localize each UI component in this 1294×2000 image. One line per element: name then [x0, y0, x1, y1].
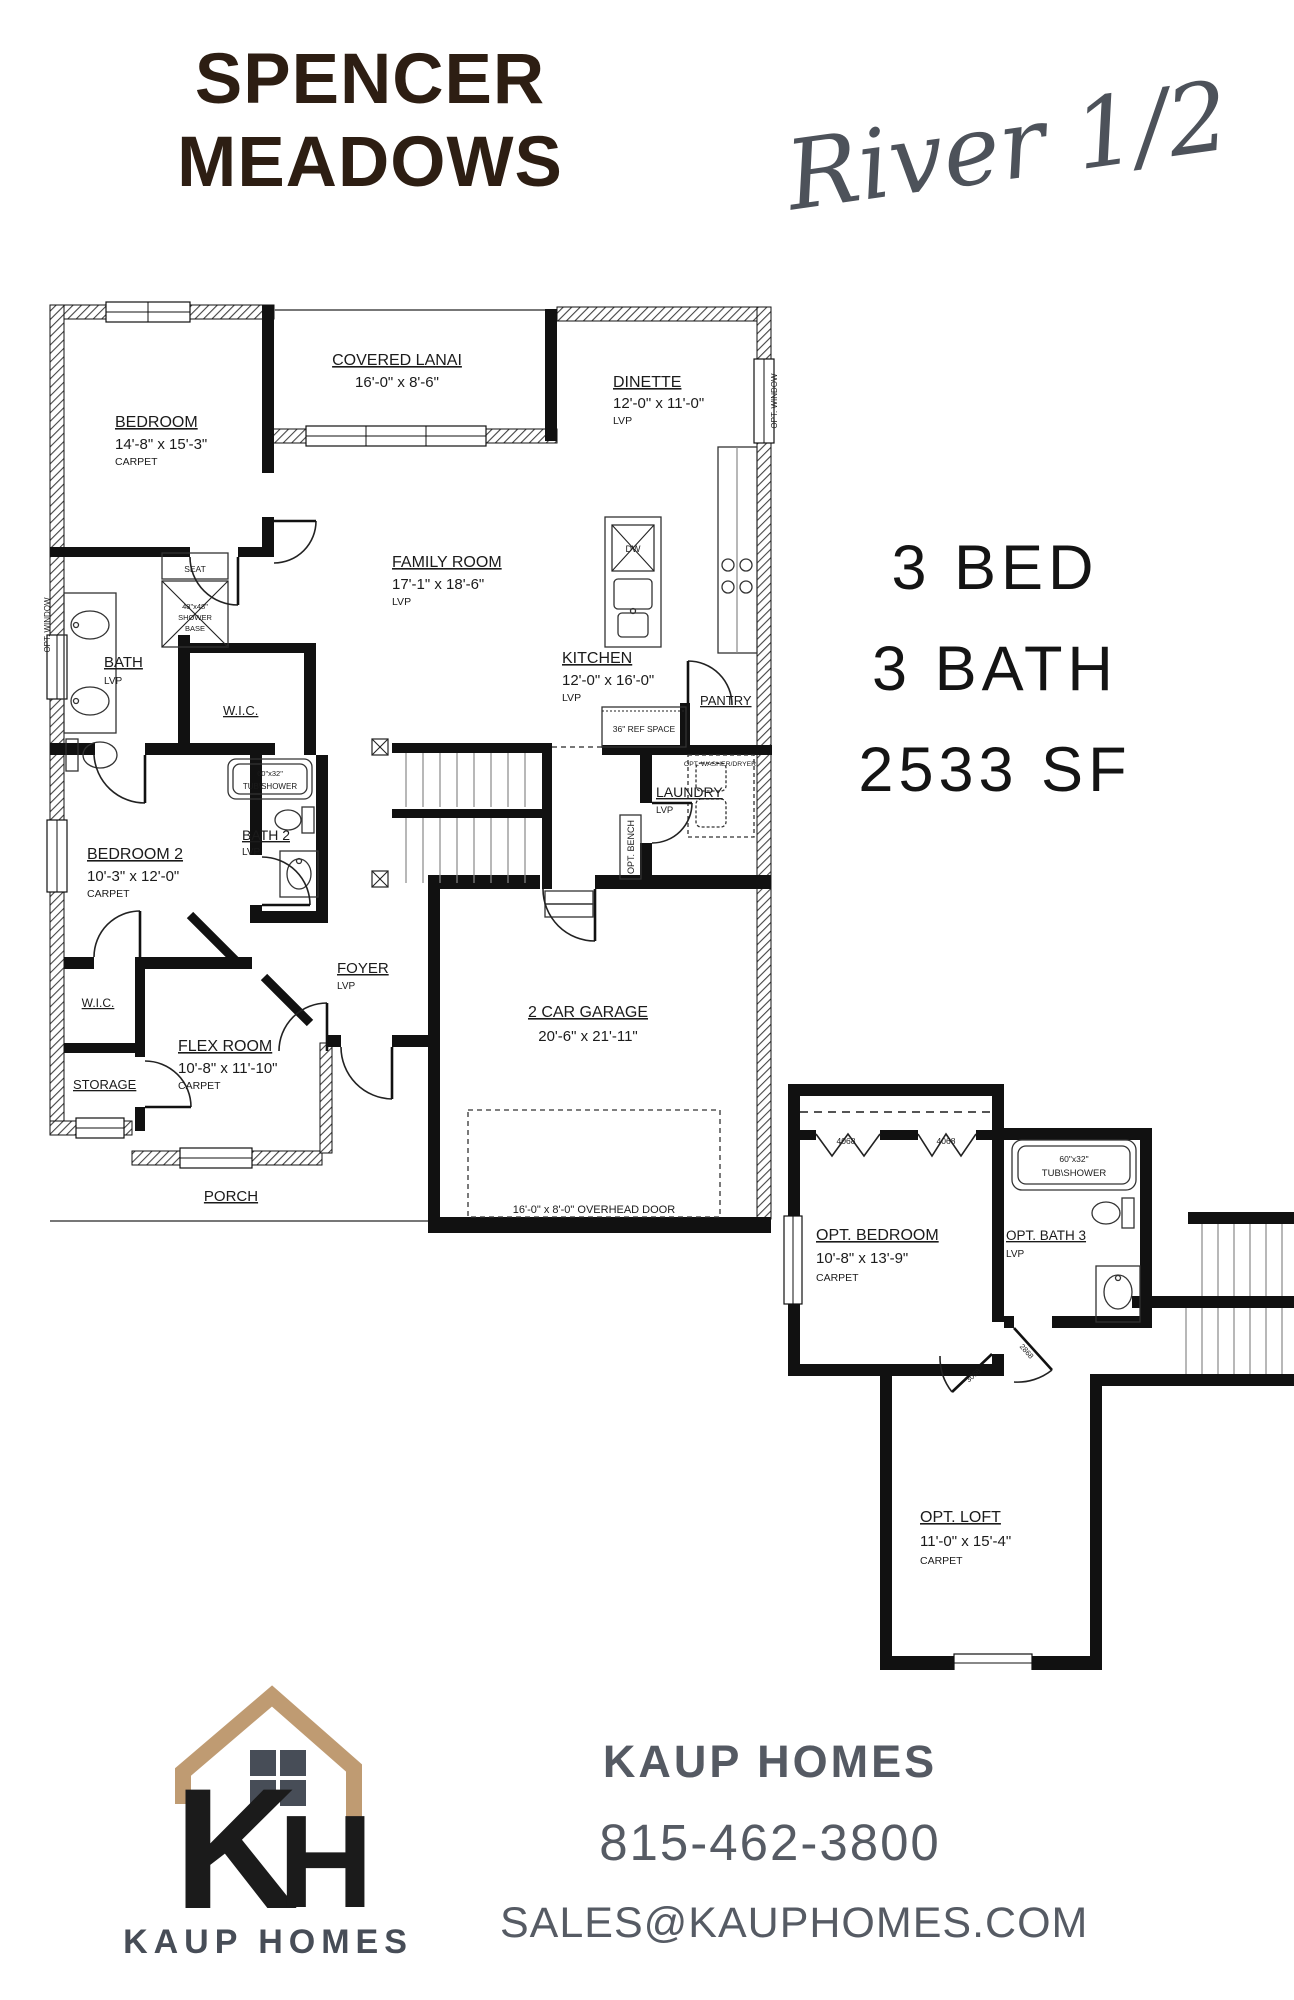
opt-loft-label: OPT. LOFT — [920, 1509, 1001, 1526]
ref-space-label: 36" REF SPACE — [613, 724, 676, 734]
main-floor-plan: BEDROOM 14'-8" x 15'-3" CARPET COVERED L… — [40, 295, 780, 1245]
family-room-dims: 17'-1" x 18'-6" — [392, 576, 484, 593]
flex-room-dims: 10'-8" x 11'-10" — [178, 1060, 278, 1077]
flex-room-label: FLEX ROOM — [178, 1038, 272, 1055]
garage-label: 2 CAR GARAGE — [528, 1004, 648, 1021]
plan-summary: 3 BED 3 BATH 2533 SF — [820, 518, 1170, 821]
opt-loft-window — [954, 1654, 1032, 1670]
flex-room-floor: CARPET — [178, 1080, 221, 1092]
family-room-label: FAMILY ROOM — [392, 554, 502, 571]
overhead-door-outline — [468, 1110, 720, 1217]
summary-beds: 3 BED — [820, 518, 1170, 619]
shower-size-label: 48"x48" — [182, 602, 208, 611]
foyer-label: FOYER — [337, 960, 389, 977]
logo-letter-h: H — [278, 1788, 373, 1917]
opt-tub-word-label: TUB\SHOWER — [1042, 1168, 1107, 1179]
opt-bedroom-dims: 10'-8" x 13'-9" — [816, 1250, 908, 1267]
dw-label: DW — [626, 544, 641, 554]
bedroom2-dims: 10'-3" x 12'-0" — [87, 868, 179, 885]
shower-word2-label: BASE — [185, 624, 205, 633]
plan-name-script: River 1/2 — [741, 0, 1274, 297]
summary-baths: 3 BATH — [820, 619, 1170, 720]
bedroom-window — [106, 302, 190, 322]
seat-label: SEAT — [184, 564, 206, 574]
dinette-dims: 12'-0" x 11'-0" — [613, 395, 704, 412]
porch-label: PORCH — [204, 1188, 258, 1205]
opt-tub-size-label: 60"x32" — [1059, 1154, 1088, 1164]
bedroom2-label: BEDROOM 2 — [87, 846, 183, 863]
phone-number[interactable]: 815-462-3800 — [500, 1813, 1040, 1872]
opt-bench-label: OPT. BENCH — [626, 820, 636, 874]
shower-word1-label: SHOWER — [178, 613, 212, 622]
garage-entry-steps — [545, 891, 593, 917]
lanai-label: COVERED LANAI — [332, 352, 462, 369]
cased-opening-posts — [372, 739, 388, 887]
bedroom-label: BEDROOM — [115, 414, 198, 431]
closet2-size-label: 4068 — [937, 1136, 956, 1146]
wic-label: W.I.C. — [223, 703, 258, 718]
door-2868-label: 2868 — [1018, 1342, 1036, 1360]
lanai-slider-window — [306, 426, 486, 446]
overhead-door-label: 16'-0" x 8'-0" OVERHEAD DOOR — [513, 1204, 675, 1216]
company-name: KAUP HOMES — [500, 1736, 1040, 1788]
foyer-floor: LVP — [337, 981, 355, 992]
garage-dims: 20'-6" x 21'-11" — [538, 1028, 638, 1045]
laundry-floor: LVP — [656, 805, 673, 816]
opt-loft-floor: CARPET — [920, 1555, 963, 1567]
opt-bath3-label: OPT. BATH 3 — [1006, 1228, 1086, 1243]
dinette-floor: LVP — [613, 415, 632, 427]
kaup-homes-logo: K H — [128, 1672, 428, 1917]
family-room-floor: LVP — [392, 596, 411, 608]
bath-label: BATH — [104, 654, 143, 671]
opt-window-right-label: OPT. WINDOW — [770, 373, 779, 429]
second-floor-plan: OPT. BEDROOM 10'-8" x 13'-9" CARPET OPT.… — [780, 1070, 1294, 1670]
kitchen-label: KITCHEN — [562, 650, 632, 667]
kitchen-counter — [718, 447, 757, 653]
flyer-page: SPENCER MEADOWS River 1/2 3 BED 3 BATH 2… — [0, 0, 1294, 2000]
bedroom-floor: CARPET — [115, 456, 158, 468]
opt-window-left-label: OPT. WINDOW — [43, 597, 52, 653]
lanai-dims: 16'-0" x 8'-6" — [355, 374, 439, 391]
storage-label: STORAGE — [73, 1077, 137, 1092]
bedroom-dims: 14'-8" x 15'-3" — [115, 436, 207, 453]
email-address[interactable]: SALES@KAUPHOMES.COM — [500, 1899, 1040, 1948]
opt-bedroom-window — [784, 1216, 802, 1304]
opt-bath3-floor: LVP — [1006, 1249, 1024, 1260]
contact-block: KAUP HOMES 815-462-3800 SALES@KAUPHOMES.… — [500, 1736, 1040, 1948]
flex-window — [180, 1148, 252, 1168]
main-floor-labels: BEDROOM 14'-8" x 15'-3" CARPET COVERED L… — [43, 352, 779, 1216]
summary-sqft: 2533 SF — [820, 720, 1170, 821]
second-floor-labels: OPT. BEDROOM 10'-8" x 13'-9" CARPET OPT.… — [816, 1136, 1106, 1567]
kitchen-floor: LVP — [562, 692, 581, 704]
dinette-label: DINETTE — [613, 374, 681, 391]
opt-bedroom-label: OPT. BEDROOM — [816, 1227, 939, 1244]
opt-loft-dims: 11'-0" x 15'-4" — [920, 1533, 1011, 1550]
laundry-label: LAUNDRY — [656, 784, 723, 800]
community-title-line2: MEADOWS — [90, 121, 650, 204]
logo-wordmark: KAUP HOMES — [88, 1923, 448, 1962]
bedroom2-floor: CARPET — [87, 888, 130, 900]
wic-flex-label: W.I.C. — [82, 996, 115, 1010]
bath2-tub — [228, 759, 312, 799]
bath2-label: BATH 2 — [242, 827, 290, 843]
opt-bedroom-floor: CARPET — [816, 1272, 859, 1284]
storage-window — [76, 1118, 124, 1138]
closet1-size-label: 4068 — [837, 1136, 856, 1146]
community-title: SPENCER MEADOWS — [90, 38, 650, 204]
community-title-line1: SPENCER — [90, 38, 650, 121]
kitchen-dims: 12'-0" x 16'-0" — [562, 672, 654, 689]
tub-size-label: 60"x32" — [257, 769, 283, 778]
bath2-floor: LVP — [242, 847, 260, 858]
opt-washer-dryer-label: OPT. WASHER/DRYER — [684, 761, 756, 768]
bath-floor: LVP — [104, 676, 122, 687]
tub-word-label: TUB\SHOWER — [243, 782, 297, 791]
pantry-label: PANTRY — [700, 693, 752, 708]
kitchen-island — [605, 517, 661, 647]
bedroom2-window — [47, 820, 67, 892]
